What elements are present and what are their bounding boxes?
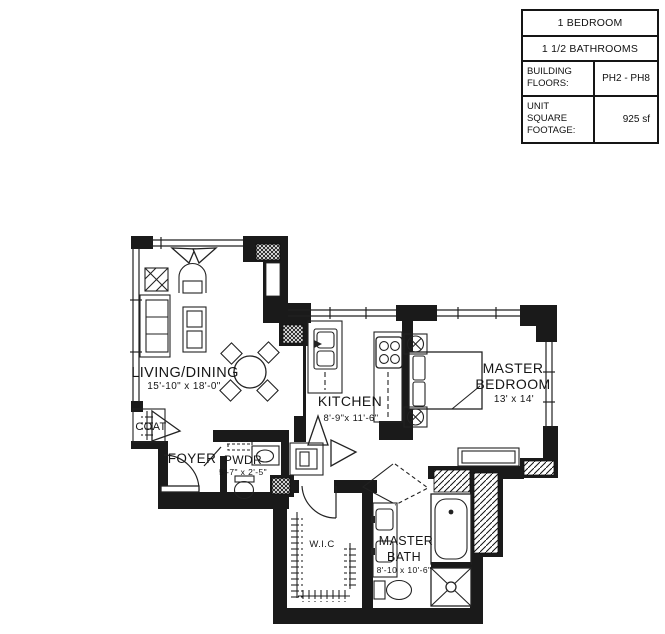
washer-dryer: [290, 443, 323, 475]
bathtub: [431, 494, 471, 564]
balcony-french-door: [172, 248, 216, 263]
wic-rods: [291, 512, 356, 602]
wall-niche: [266, 263, 280, 296]
wic-label: W.I.C: [309, 539, 334, 550]
sink-knob: [371, 516, 375, 523]
coffee-table: [183, 307, 206, 352]
wic-door: [302, 486, 336, 518]
furniture: [133, 264, 519, 607]
master-bath-dims: 8'-10 x 10'-6": [377, 565, 432, 575]
master-bedroom-label-2: BEDROOM: [475, 376, 550, 392]
master-bedroom-dims: 13' x 14': [494, 394, 534, 405]
bath-door: [395, 464, 428, 505]
bath-toilet: [374, 581, 412, 600]
shower: [431, 562, 471, 606]
floorplan-svg: LIVING/DINING 15'-10" x 18'-0" KITCHEN 8…: [0, 0, 665, 634]
master-bath-label-1: MASTER: [379, 534, 434, 548]
kitchen-label: KITCHEN: [318, 393, 382, 409]
coat-label: COAT: [135, 421, 166, 433]
armchair: [179, 264, 206, 294]
kitchen-counter-sink: [308, 321, 342, 393]
side-table: [145, 268, 168, 291]
master-bath-label-2: BATH: [387, 550, 421, 564]
bed: [409, 352, 482, 409]
sofa: [140, 295, 170, 357]
living-dining-label: LIVING/DINING: [131, 365, 239, 381]
sink-knob: [371, 548, 375, 555]
powder-label: PWDR: [224, 453, 262, 467]
living-north-window: [151, 237, 243, 249]
master-bedroom-label-1: MASTER: [483, 360, 544, 376]
bedroom-north-window: [437, 307, 520, 319]
powder-dims: 5'-7" x 2'-5": [219, 467, 267, 477]
foyer-label: FOYER: [168, 451, 217, 466]
living-dining-dims: 15'-10" x 18'-0": [147, 381, 221, 392]
kitchen-dims: 8'-9"x 11'-6": [323, 413, 378, 424]
dresser: [458, 448, 519, 466]
floorplan-page: 1 BEDROOM 1 1/2 BATHROOMS BUILDING FLOOR…: [0, 0, 665, 634]
